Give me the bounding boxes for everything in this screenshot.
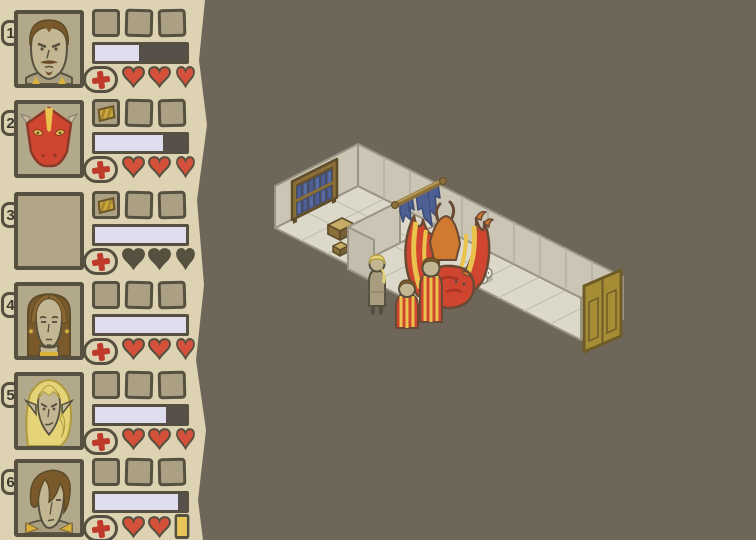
inventory-slot[interactable] <box>158 9 187 38</box>
inventory-slots <box>92 371 186 399</box>
portrait-young-man[interactable] <box>14 459 84 537</box>
inventory-slot[interactable] <box>125 458 154 487</box>
hp-bar <box>92 224 189 246</box>
heart-full-icon <box>147 427 172 451</box>
hp-bar-fill <box>95 135 163 151</box>
party-member-card: 1 <box>0 4 212 96</box>
inventory-slot[interactable] <box>158 281 187 310</box>
inventory-slot[interactable] <box>125 281 154 310</box>
inventory-slot[interactable] <box>158 458 187 487</box>
dragon-face-icon <box>18 104 80 174</box>
small-crate[interactable] <box>333 242 348 256</box>
heart-full-icon <box>175 427 196 451</box>
inventory-slot[interactable] <box>158 371 187 400</box>
hearts-row <box>121 247 198 271</box>
hearts-row <box>121 155 198 179</box>
health-cross-icon <box>83 515 118 540</box>
inventory-slot[interactable] <box>125 191 154 220</box>
party-member-card: 4 <box>0 276 212 368</box>
heart-full-icon <box>175 65 196 89</box>
heart-empty-icon <box>121 247 146 271</box>
heart-empty-icon <box>175 247 196 271</box>
inventory-slot[interactable] <box>92 371 120 399</box>
blonde-adventurer[interactable] <box>369 255 386 313</box>
hearts-row <box>121 427 198 451</box>
inventory-slot[interactable] <box>92 281 120 309</box>
heart-full-icon <box>147 65 172 89</box>
party-member-card: 6 <box>0 453 212 540</box>
heart-full-icon <box>121 427 146 451</box>
heart-full-icon <box>121 155 146 179</box>
game-screen: 1 <box>0 0 756 540</box>
inventory-slot[interactable] <box>125 99 154 128</box>
hp-bar-fill <box>95 45 139 61</box>
heart-full-icon <box>121 65 146 89</box>
party-member-card: 5 <box>0 366 212 458</box>
hp-bar <box>92 42 189 64</box>
hp-bar-fill <box>95 227 186 243</box>
hp-bar-fill <box>95 494 178 510</box>
inventory-slots <box>92 458 186 486</box>
loot-item-icon <box>97 196 115 213</box>
portrait-red-dragon[interactable] <box>14 100 84 178</box>
inventory-slots <box>92 281 186 309</box>
hp-bar <box>92 314 189 336</box>
inventory-slots <box>92 99 186 127</box>
striped-robe-figure-1[interactable] <box>396 280 418 328</box>
heart-full-icon <box>121 515 146 539</box>
portrait-woman[interactable] <box>14 282 84 360</box>
party-sidebar: 1 <box>0 0 212 540</box>
hp-bar-fill <box>95 317 186 333</box>
inventory-slot[interactable] <box>125 9 154 38</box>
striped-robe-figure-2[interactable] <box>420 258 442 322</box>
heart-full-icon <box>121 337 146 361</box>
heart-empty-icon <box>147 247 172 271</box>
inventory-slot[interactable] <box>158 191 187 220</box>
elf-face-icon <box>18 376 80 446</box>
portrait-empty[interactable] <box>14 192 84 270</box>
hp-bar <box>92 404 189 426</box>
inventory-slot[interactable] <box>125 371 154 400</box>
hearts-row <box>121 514 191 539</box>
hearts-row <box>121 65 198 89</box>
portrait-elf[interactable] <box>14 372 84 450</box>
inventory-slot[interactable] <box>92 99 120 127</box>
empty-portrait <box>18 196 80 266</box>
health-cross-icon <box>83 156 118 183</box>
health-cross-icon <box>83 338 118 365</box>
gold-token <box>175 514 190 539</box>
hp-bar-fill <box>95 407 166 423</box>
health-cross-icon <box>83 248 118 275</box>
heart-full-icon <box>147 155 172 179</box>
inventory-slot[interactable] <box>92 191 120 219</box>
woman-face-icon <box>18 286 80 356</box>
hp-bar <box>92 491 189 513</box>
inventory-slots <box>92 9 186 37</box>
heart-full-icon <box>175 155 196 179</box>
stern-man-face-icon <box>18 14 80 84</box>
heart-full-icon <box>175 337 196 361</box>
double-wooden-door[interactable] <box>584 270 621 352</box>
young-man-face-icon <box>18 463 80 533</box>
heart-full-icon <box>147 515 172 539</box>
inventory-slot[interactable] <box>158 99 187 128</box>
health-cross-icon <box>83 428 118 455</box>
party-member-card: 2 <box>0 94 212 186</box>
heart-full-icon <box>147 337 172 361</box>
inventory-slot[interactable] <box>92 9 120 37</box>
party-member-card: 3 <box>0 186 212 278</box>
health-cross-icon <box>83 66 118 93</box>
loot-item-icon <box>97 104 115 121</box>
dungeon-map <box>250 122 640 357</box>
portrait-stern-man[interactable] <box>14 10 84 88</box>
inventory-slots <box>92 191 186 219</box>
hearts-row <box>121 337 198 361</box>
hp-bar <box>92 132 189 154</box>
inventory-slot[interactable] <box>92 458 120 486</box>
